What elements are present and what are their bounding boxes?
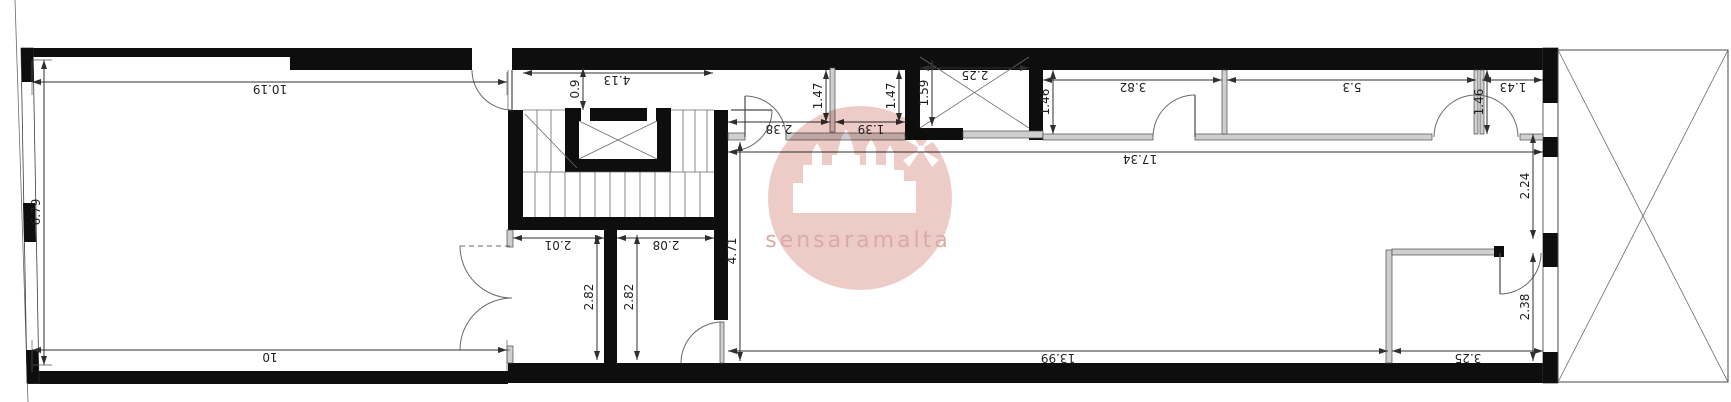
floor-plan-page: 10.19 10 4.13 2.38 1.39 2.25 3.82 5.3 1.…: [0, 0, 1731, 402]
dim-hall-width: 2.38: [766, 122, 793, 136]
dim-rear-upper-depth: 2.24: [1518, 173, 1532, 200]
dim-store-a-depth: 2.82: [582, 284, 596, 311]
dim-rear-room-width: 3.25: [1455, 351, 1482, 365]
dim-rear-room-depth: 2.38: [1518, 294, 1532, 321]
watermark-label: sensaramalta: [765, 228, 951, 253]
dim-wc2-depth: 1.47: [884, 83, 898, 110]
corridor-wall: [714, 110, 728, 320]
dim-store-b-width: 2.08: [653, 238, 680, 252]
dim-shaft-width: 2.25: [962, 68, 989, 82]
floor-plan-svg: 10.19 10 4.13 2.38 1.39 2.25 3.82 5.3 1.…: [0, 0, 1731, 402]
dim-top-room1-width: 3.82: [1120, 80, 1147, 94]
dim-left-room-top: 10.19: [253, 82, 287, 96]
dim-store-b-depth: 2.82: [622, 284, 636, 311]
dim-stair-landing: 0.9: [568, 79, 582, 98]
rear-room-door-arc: [1500, 253, 1541, 294]
dim-top-room2-width: 5.3: [1342, 80, 1361, 94]
dim-stairwell-width: 4.13: [604, 73, 631, 87]
entrance-door-arc: [472, 70, 512, 110]
dim-store-a-width: 2.01: [545, 238, 572, 252]
french-door-arc-bottom: [460, 298, 512, 350]
dim-shaft-depth: 1.59: [917, 80, 931, 107]
dim-living-depth: 4.71: [725, 238, 739, 265]
dim-left-room-bottom: 10: [262, 350, 277, 364]
french-door-arc-top: [460, 246, 512, 298]
elevator: [565, 108, 671, 172]
dim-top-room3-width: 1.43: [1500, 80, 1527, 94]
dim-living-length: 13.99: [1041, 351, 1075, 365]
dim-top-total: 17.34: [1123, 152, 1157, 166]
dim-wc1-depth: 1.47: [811, 83, 825, 110]
store-b-door-arc: [681, 322, 722, 363]
party-wall: [1543, 48, 1558, 383]
top-room-door-arc: [1153, 95, 1195, 137]
adjacent-plot: [1558, 50, 1728, 382]
dim-left-room-depth: 6.79: [29, 199, 43, 226]
dim-top-room1-recess: 1.46: [1038, 89, 1052, 116]
dim-top-room3-recess: 1.46: [1472, 89, 1486, 116]
